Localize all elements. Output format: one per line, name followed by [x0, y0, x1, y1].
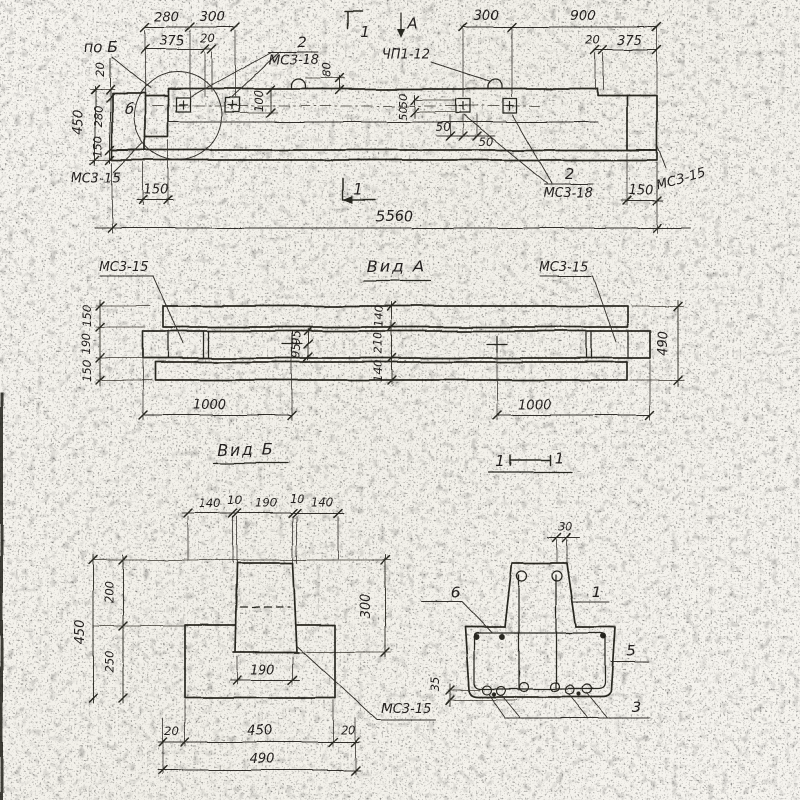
paper-noise-coarse	[0, 0, 800, 800]
scanned-drawing-sheet: 280 300 375 20 300 900 20 375 1 А	[0, 0, 800, 800]
drawing-canvas: 280 300 375 20 300 900 20 375 1 А	[0, 0, 800, 800]
